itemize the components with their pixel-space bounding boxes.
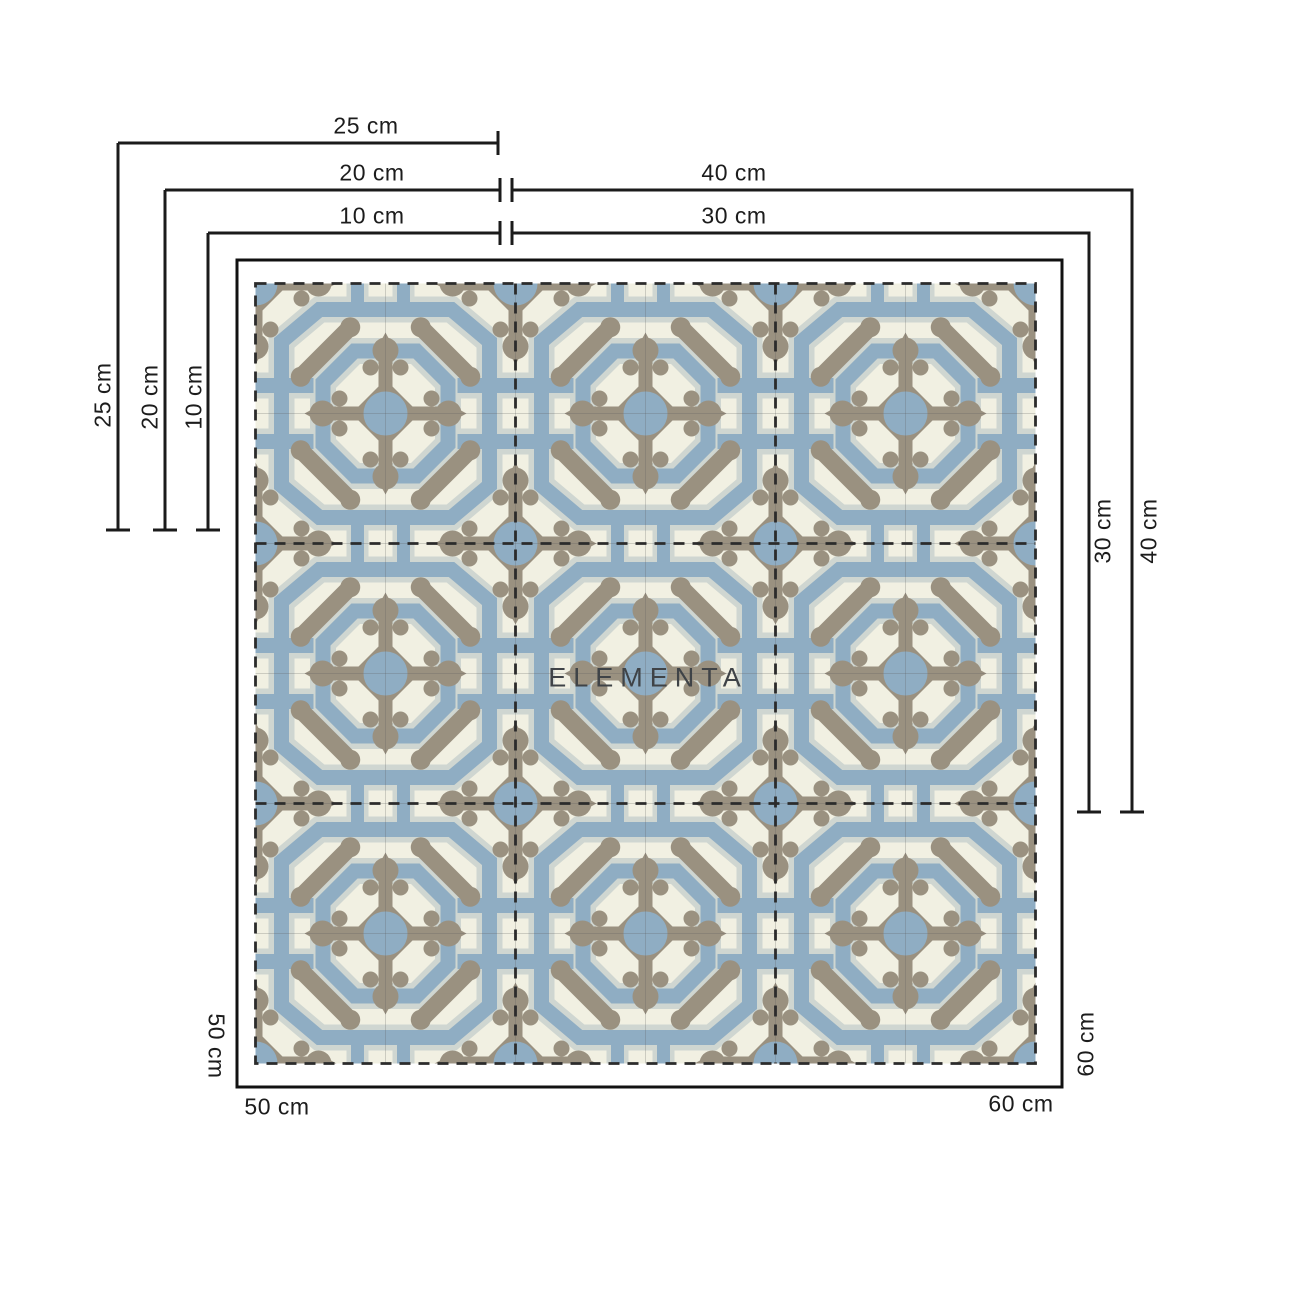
diagram-graphics xyxy=(0,0,1291,1291)
dim-label-40cm-right: 40 cm xyxy=(1136,498,1163,563)
dim-label-10cm-left: 10 cm xyxy=(181,364,208,429)
dim-label-20cm-top: 20 cm xyxy=(339,160,404,187)
dim-label-10cm-top: 10 cm xyxy=(339,203,404,230)
dim-label-60cm-bottom: 60 cm xyxy=(988,1091,1053,1118)
dim-label-60cm-right-vertical: 60 cm xyxy=(1073,1011,1100,1076)
tile-dimension-diagram: 25 cm 20 cm 10 cm 40 cm 30 cm 25 cm 20 c… xyxy=(0,0,1291,1291)
dim-label-25cm-top: 25 cm xyxy=(333,113,398,140)
dim-label-25cm-left: 25 cm xyxy=(90,362,117,427)
dim-label-50cm-left-vertical: 50 cm xyxy=(203,1013,230,1078)
brand-watermark: ELEMENTA xyxy=(548,663,748,694)
dim-label-50cm-bottom: 50 cm xyxy=(244,1094,309,1121)
dim-label-20cm-left: 20 cm xyxy=(137,364,164,429)
dim-label-40cm-top: 40 cm xyxy=(701,160,766,187)
dim-label-30cm-top: 30 cm xyxy=(701,203,766,230)
dim-label-30cm-right: 30 cm xyxy=(1090,498,1117,563)
